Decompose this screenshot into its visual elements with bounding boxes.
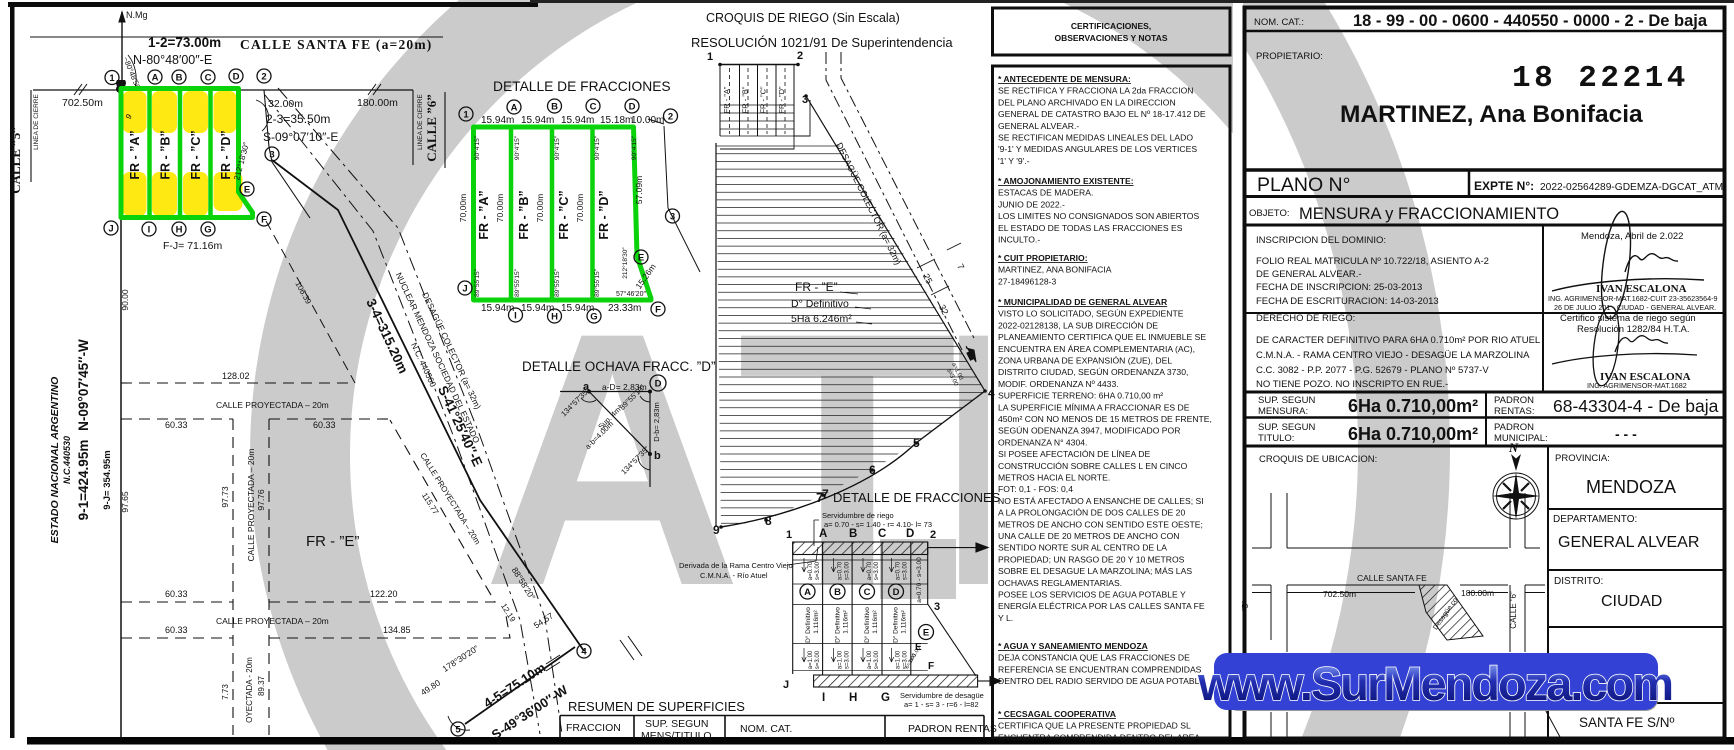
svg-text:DISTRITO CIUDAD, SEGÚN ORDENAN: DISTRITO CIUDAD, SEGÚN ORDENANZA 3730,	[998, 367, 1188, 377]
svg-text:SUP. SEGUN: SUP. SEGUN	[1258, 395, 1316, 406]
svg-text:A: A	[152, 72, 159, 83]
svg-text:CALLE ”5”: CALLE ”5”	[8, 126, 23, 194]
svg-text:27-18496128-3: 27-18496128-3	[998, 276, 1057, 286]
svg-text:RESOLUCIÓN 1021/91 De Superint: RESOLUCIÓN 1021/91 De Superintendencia	[691, 35, 953, 50]
svg-text:DEPARTAMENTO:: DEPARTAMENTO:	[1553, 514, 1637, 525]
svg-text:G: G	[590, 311, 597, 322]
svg-text:D: D	[655, 378, 662, 389]
svg-text:ESTACAS DE MADERA.: ESTACAS DE MADERA.	[998, 188, 1093, 198]
svg-text:GENERAL ALVEAR.-: GENERAL ALVEAR.-	[998, 121, 1079, 131]
svg-text:F: F	[261, 214, 267, 225]
svg-text:FR - ”E”: FR - ”E”	[795, 280, 838, 294]
svg-text:s=3.00: s=3.00	[845, 650, 851, 669]
svg-text:FR - ”B”: FR - ”B”	[741, 86, 750, 113]
svg-text:NOM. CAT.: NOM. CAT.	[740, 723, 792, 735]
svg-text:GENERAL DE CATASTRO BAJO EL Nº: GENERAL DE CATASTRO BAJO EL Nº 18-17.412…	[998, 109, 1206, 119]
svg-text:1.116m²: 1.116m²	[872, 609, 879, 633]
svg-text:G: G	[204, 224, 211, 235]
svg-text:I: I	[822, 692, 825, 704]
svg-text:b: b	[654, 450, 661, 462]
svg-text:s=3.00: s=3.00	[874, 561, 880, 580]
svg-text:32.00m: 32.00m	[268, 98, 303, 110]
svg-text:450m² CON NO MENOS DE 15 METRO: 450m² CON NO MENOS DE 15 METROS DE FRENT…	[998, 414, 1212, 424]
svg-text:C: C	[878, 528, 886, 540]
svg-text:LINEA DE CIERRE: LINEA DE CIERRE	[33, 94, 40, 150]
svg-text:DENTRO DEL RADIO SERVIDO DE AG: DENTRO DEL RADIO SERVIDO DE AGUA POTABLE	[998, 676, 1205, 686]
svg-text:'9-1' Y MEDIDAS ANGULARES DE L: '9-1' Y MEDIDAS ANGULARES DE LOS VERTICE…	[998, 144, 1197, 154]
svg-text:PLANEAMIENTO CERTIFICA QUE EL: PLANEAMIENTO CERTIFICA QUE EL INMUEBLE S…	[998, 332, 1206, 342]
svg-text:INCULTO.-: INCULTO.-	[998, 235, 1040, 245]
svg-text:REFERENCIA SE ENCUENTRAN COMPR: REFERENCIA SE ENCUENTRAN COMPRENDIDAS	[998, 664, 1202, 674]
svg-text:I: I	[148, 224, 151, 235]
svg-text:”5”: ”5”	[1241, 601, 1250, 611]
svg-text:FOLIO REAL MATRICULA Nº 10.722: FOLIO REAL MATRICULA Nº 10.722/18, ASIEN…	[1256, 256, 1489, 267]
svg-text:s=3.00: s=3.00	[815, 561, 821, 580]
svg-text:F: F	[928, 661, 934, 672]
svg-text:CIUDAD: CIUDAD	[1601, 593, 1662, 610]
svg-text:VISTO LO SOLICITADO, SEGÚN EXP: VISTO LO SOLICITADO, SEGÚN EXPEDIENTE	[998, 309, 1184, 319]
svg-text:E: E	[244, 184, 250, 195]
svg-text:89.37: 89.37	[257, 675, 266, 696]
svg-text:DEL PLANO ARCHIVADO EN LA DIRE: DEL PLANO ARCHIVADO EN LA DIRECCION	[998, 97, 1176, 107]
svg-text:CROQUIS DE RIEGO (Sin Escala): CROQUIS DE RIEGO (Sin Escala)	[706, 11, 900, 25]
svg-text:70.00m: 70.00m	[575, 194, 585, 222]
svg-text:MODIF. ORDENANZA Nº 4433.: MODIF. ORDENANZA Nº 4433.	[998, 379, 1119, 389]
svg-text:OYECTADA - 20m: OYECTADA - 20m	[245, 657, 254, 723]
svg-text:Derivada de la Rama Centro Vie: Derivada de la Rama Centro Viejo	[679, 561, 793, 570]
svg-text:9-1=424.95m: 9-1=424.95m	[76, 440, 91, 521]
svg-text:* CECSAGAL COOPERATIVA: * CECSAGAL COOPERATIVA	[998, 709, 1116, 719]
svg-text:D: D	[629, 101, 636, 112]
svg-text:H: H	[551, 311, 558, 322]
svg-text:SENTIDO NORTE SUR AL CENTRO DE: SENTIDO NORTE SUR AL CENTRO DE LA	[998, 543, 1167, 553]
svg-text:15.18m: 15.18m	[600, 115, 633, 126]
svg-text:2: 2	[930, 529, 936, 541]
svg-text:PADRON: PADRON	[1494, 395, 1534, 406]
svg-text:D° Definitivo: D° Definitivo	[791, 298, 849, 310]
svg-text:N-09°07′45″-W: N-09°07′45″-W	[76, 339, 91, 431]
svg-text:ENCUENTRA EN ÁREA COMPLEMENTAR: ENCUENTRA EN ÁREA COMPLEMENTARIA (AC),	[998, 344, 1195, 354]
svg-text:128.02: 128.02	[222, 371, 250, 381]
svg-text:57.09m: 57.09m	[634, 176, 644, 204]
svg-text:C.M.N.A. - Río Atuel: C.M.N.A. - Río Atuel	[700, 571, 768, 580]
svg-text:180.00m: 180.00m	[1461, 588, 1494, 598]
svg-text:a=0.70: a=0.70	[808, 561, 814, 580]
svg-text:DETALLE OCHAVA FRACC. ”D”: DETALLE OCHAVA FRACC. ”D”	[522, 359, 716, 374]
svg-text:'1' Y '9'.-: '1' Y '9'.-	[998, 156, 1030, 166]
svg-text:s=3.00: s=3.00	[845, 561, 851, 580]
svg-text:A LA PROLONGACIÓN DE DOS CALLE: A LA PROLONGACIÓN DE DOS CALLES DE 20	[998, 508, 1185, 518]
svg-text:90°4′15″: 90°4′15″	[473, 135, 481, 160]
svg-text:15.94m: 15.94m	[561, 115, 594, 126]
svg-text:METROS HACIA EL NORTE.: METROS HACIA EL NORTE.	[998, 473, 1110, 483]
svg-text:6Ha 0.710,00m²: 6Ha 0.710,00m²	[1348, 424, 1478, 444]
svg-text:90.00: 90.00	[120, 289, 130, 311]
svg-text:DETALLE DE FRACCIONES: DETALLE DE FRACCIONES	[833, 490, 1001, 505]
svg-text:s=3.00: s=3.00	[815, 650, 821, 669]
svg-text:SOBRE EL DESAGUE LA MARZOLINA;: SOBRE EL DESAGUE LA MARZOLINA; MÁS LAS	[998, 566, 1192, 576]
svg-text:* AGUA Y SANEAMIENTO MENDOZA: * AGUA Y SANEAMIENTO MENDOZA	[998, 641, 1148, 651]
svg-text:C: C	[590, 101, 597, 112]
svg-text:Mendoza, Abril de 2.022: Mendoza, Abril de 2.022	[1581, 231, 1683, 242]
svg-text:DE GENERAL ALVEAR.-: DE GENERAL ALVEAR.-	[1256, 269, 1362, 280]
svg-text:a=0.70 - s=3.00: a=0.70 - s=3.00	[916, 557, 923, 603]
svg-text:18 - 99 - 00 - 0600 - 440550 -: 18 - 99 - 00 - 0600 - 440550 - 0000 - 2 …	[1353, 12, 1708, 30]
svg-text:CALLE PROYECTADA – 20m: CALLE PROYECTADA – 20m	[246, 449, 256, 562]
svg-text:ENERGÍA ELÉCTRICA POR LAS CALL: ENERGÍA ELÉCTRICA POR LAS CALLES SANTA F…	[998, 601, 1205, 611]
svg-text:DETALLE DE FRACCIONES: DETALLE DE FRACCIONES	[493, 79, 671, 94]
svg-text:FR - ”E”: FR - ”E”	[306, 533, 359, 550]
svg-text:PLANO N°: PLANO N°	[1257, 174, 1350, 196]
svg-text:a=1.00: a=1.00	[896, 650, 902, 669]
svg-text:CALLE ”6”: CALLE ”6”	[424, 94, 439, 162]
svg-text:ESTADO NACIONAL ARGENTINO: ESTADO NACIONAL ARGENTINO	[49, 377, 61, 544]
svg-text:SANTA FE S/Nº: SANTA FE S/Nº	[1579, 715, 1675, 730]
svg-text:60.33: 60.33	[165, 625, 188, 635]
svg-text:89°55′15″: 89°55′15″	[553, 268, 561, 297]
svg-text:LOS LIMITES NO CONSIGNADOS SON: LOS LIMITES NO CONSIGNADOS SON ABIERTOS	[998, 211, 1199, 221]
svg-text:15.94m: 15.94m	[521, 303, 554, 314]
svg-text:MARTINEZ, ANA BONIFACIA: MARTINEZ, ANA BONIFACIA	[998, 265, 1112, 275]
svg-text:D: D	[233, 71, 240, 82]
svg-text:* AMOJONAMIENTO EXISTENTE:: * AMOJONAMIENTO EXISTENTE:	[998, 176, 1134, 186]
svg-text:57°46′20″: 57°46′20″	[616, 290, 646, 298]
svg-text:10.00m: 10.00m	[631, 115, 664, 126]
svg-text:212°18′30″: 212°18′30″	[232, 141, 251, 181]
svg-text:PADRON: PADRON	[1494, 422, 1534, 433]
svg-text:D: D	[906, 528, 914, 540]
svg-text:2: 2	[797, 50, 803, 62]
svg-text:4: 4	[581, 646, 587, 657]
svg-text:5: 5	[455, 724, 461, 735]
svg-text:FOT: 0,1 - FOS: 0,4: FOT: 0,1 - FOS: 0,4	[998, 484, 1073, 494]
svg-text:FR - ”D”: FR - ”D”	[597, 190, 611, 239]
svg-text:90°4′15″: 90°4′15″	[553, 135, 561, 160]
svg-text:9: 9	[713, 523, 720, 537]
svg-text:H: H	[849, 692, 857, 704]
svg-text:* ANTECEDENTE DE MENSURA:: * ANTECEDENTE DE MENSURA:	[998, 74, 1131, 84]
svg-text:METROS DE ANCHO CON SENTIDO ES: METROS DE ANCHO CON SENTIDO ESTE OESTE;	[998, 519, 1203, 529]
svg-text:7: 7	[816, 490, 823, 505]
svg-text:SE RECTIFICA Y FRACCIONA LA 2d: SE RECTIFICA Y FRACCIONA LA 2da FRACCION	[998, 86, 1193, 96]
svg-text:a=0.70: a=0.70	[896, 561, 902, 580]
svg-text:MENDOZA: MENDOZA	[1586, 477, 1676, 497]
svg-text:Y L.: Y L.	[998, 613, 1013, 623]
svg-text:H: H	[176, 224, 183, 235]
svg-text:15.94m: 15.94m	[521, 115, 554, 126]
svg-text:NO ESTÁ AFECTADO A ENSANCHE DE: NO ESTÁ AFECTADO A ENSANCHE DE CALLES; S…	[998, 496, 1204, 506]
svg-text:1: 1	[463, 109, 469, 120]
svg-text:DISTRITO:: DISTRITO:	[1554, 576, 1603, 587]
svg-text:N: N	[1508, 441, 1519, 455]
svg-text:2-3=35.50m: 2-3=35.50m	[266, 112, 330, 126]
svg-text:2022-02128138, LA SUB DIRECCIÓ: 2022-02128138, LA SUB DIRECCIÓN DE	[998, 320, 1158, 330]
svg-text:JUNIO DE 2022.-: JUNIO DE 2022.-	[998, 199, 1065, 209]
svg-text:D° Definitivo: D° Definitivo	[834, 607, 842, 643]
svg-text:ORDENANZA N° 4304.: ORDENANZA N° 4304.	[998, 437, 1087, 447]
svg-text:97.73: 97.73	[220, 486, 230, 508]
svg-text:F: F	[655, 304, 661, 315]
svg-text:ING. AGRIMENSOR-MAT.1682: ING. AGRIMENSOR-MAT.1682	[1587, 381, 1687, 390]
svg-text:C: C	[864, 587, 871, 598]
svg-text:FR - ”B”: FR - ”B”	[517, 190, 531, 239]
svg-text:1-2=73.00m: 1-2=73.00m	[148, 35, 221, 50]
svg-text:A: A	[511, 102, 518, 113]
svg-text:C: C	[205, 72, 212, 83]
svg-text:EXPTE N°:: EXPTE N°:	[1474, 179, 1534, 193]
svg-text:49.80: 49.80	[419, 677, 443, 697]
svg-text:FECHA DE INSCRIPCION: 25-03-20: FECHA DE INSCRIPCION: 25-03-2013	[1256, 282, 1422, 293]
svg-text:SUPERFICIE TERRENO: 6HA 0.710,: SUPERFICIE TERRENO: 6HA 0.710,00 m²	[998, 391, 1163, 401]
svg-text:INSCRIPCION DEL DOMINIO:: INSCRIPCION DEL DOMINIO:	[1256, 235, 1386, 246]
svg-text:B: B	[551, 101, 558, 112]
svg-text:TITULO:: TITULO:	[1258, 433, 1294, 444]
svg-text:www.SurMendoza.com: www.SurMendoza.com	[1197, 657, 1672, 710]
svg-text:N.Mg: N.Mg	[126, 10, 148, 20]
svg-text:N.C.440530: N.C.440530	[62, 436, 72, 484]
svg-text:212°18′30″: 212°18′30″	[621, 247, 629, 279]
svg-text:D° Definitivo: D° Definitivo	[804, 607, 812, 643]
svg-text:60.33: 60.33	[165, 589, 188, 599]
svg-text:a= 1 - s= 3 - r=6 - l=82: a= 1 - s= 3 - r=6 - l=82	[904, 700, 979, 709]
svg-text:26 DE JULIO 201 - CIUDAD - GEN: 26 DE JULIO 201 - CIUDAD - GENERAL ALVEA…	[1554, 303, 1716, 312]
svg-text:23.33m: 23.33m	[608, 303, 641, 314]
svg-text:B: B	[834, 587, 841, 598]
svg-text:UNA CALLE DE 20 METROS DE ANCH: UNA CALLE DE 20 METROS DE ANCHO CON	[998, 531, 1179, 541]
svg-text:SUP. SEGUN: SUP. SEGUN	[645, 718, 708, 730]
svg-text:Resolución 1282/84 H.T.A.: Resolución 1282/84 H.T.A.	[1577, 324, 1689, 335]
svg-text:CALLE PROYECTADA – 20m: CALLE PROYECTADA – 20m	[216, 616, 329, 626]
svg-text:a=1.00: a=1.00	[808, 650, 814, 669]
svg-text:2: 2	[261, 71, 266, 82]
svg-text:SUP. SEGUN: SUP. SEGUN	[1258, 422, 1316, 433]
svg-text:B: B	[849, 528, 857, 540]
svg-text:9-J= 354.95m: 9-J= 354.95m	[102, 450, 113, 509]
svg-text:90°4′15″: 90°4′15″	[593, 135, 601, 160]
svg-text:60.33: 60.33	[313, 420, 336, 430]
svg-text:FR - ”A”: FR - ”A”	[128, 130, 142, 179]
svg-text:70.00m: 70.00m	[535, 194, 545, 222]
svg-text:OBJETO:: OBJETO:	[1249, 208, 1289, 219]
svg-text:FRACCION: FRACCION	[566, 722, 621, 734]
svg-text:MENSURA y FRACCIONAMIENTO: MENSURA y FRACCIONAMIENTO	[1299, 205, 1559, 223]
svg-text:CALLE SANTA FE (a=20m): CALLE SANTA FE (a=20m)	[240, 37, 432, 52]
svg-text:s=3.00: s=3.00	[903, 561, 909, 580]
svg-text:a=0.70: a=0.70	[838, 561, 844, 580]
svg-text:D° Definitivo: D° Definitivo	[892, 607, 900, 643]
svg-text:POSEE LOS SERVICIOS DE AGUA PO: POSEE LOS SERVICIOS DE AGUA POTABLE Y	[998, 590, 1186, 600]
svg-text:68-43304-4 - De baja: 68-43304-4 - De baja	[1553, 396, 1719, 416]
svg-text:3: 3	[934, 601, 940, 613]
svg-text:1: 1	[109, 73, 115, 84]
svg-text:PROPIEDAD; UN RASGO DE 20 Y 10: PROPIEDAD; UN RASGO DE 20 Y 10 METROS	[998, 554, 1185, 564]
svg-text:A: A	[819, 528, 827, 540]
svg-text:89°55′15″: 89°55′15″	[593, 268, 601, 297]
svg-text:Certifico sistema de riego seg: Certifico sistema de riego según	[1560, 313, 1696, 324]
svg-text:CALLE PROYECTADA – 20m: CALLE PROYECTADA – 20m	[216, 400, 329, 410]
svg-text:* CUIT PROPIETARIO:: * CUIT PROPIETARIO:	[998, 253, 1088, 263]
svg-text:NO TIENE POZO. NO INSCRIPTO EN: NO TIENE POZO. NO INSCRIPTO EN RUE.-	[1256, 379, 1448, 390]
svg-text:J: J	[108, 223, 113, 234]
svg-text:GENERAL ALVEAR: GENERAL ALVEAR	[1558, 534, 1699, 551]
svg-text:SEGÚN ODENANZA 3947, MODIFICAD: SEGÚN ODENANZA 3947, MODIFICADO POR	[998, 426, 1180, 436]
svg-text:a=1.00: a=1.00	[867, 650, 873, 669]
svg-text:122.20: 122.20	[370, 589, 398, 599]
svg-text:97.76: 97.76	[256, 489, 266, 511]
svg-text:G: G	[881, 692, 890, 704]
svg-text:SI POSEE AFECTACIÓN DE LÍNEA D: SI POSEE AFECTACIÓN DE LÍNEA DE	[998, 449, 1150, 459]
svg-text:CERTIFICA QUE LA PRESENTE PROP: CERTIFICA QUE LA PRESENTE PROPIEDAD SL	[998, 721, 1191, 731]
svg-text:ING. AGRIMENSOR-MAT.1682-CUIT: ING. AGRIMENSOR-MAT.1682-CUIT 23-3562356…	[1548, 294, 1718, 303]
svg-text:J: J	[462, 283, 467, 294]
svg-text:70.00m: 70.00m	[495, 194, 505, 222]
svg-text:NUCLEAR MENDOZA SOCIEDAD DEL E: NUCLEAR MENDOZA SOCIEDAD DEL ESTADO	[394, 271, 482, 445]
svg-text:FR - ”A”: FR - ”A”	[477, 190, 491, 239]
svg-text:Servidumbre de desagüe: Servidumbre de desagüe	[900, 691, 984, 700]
svg-text:ZONA URBANA DE EXPANSIÓN (ZUE): ZONA URBANA DE EXPANSIÓN (ZUE), DEL	[998, 356, 1172, 366]
svg-text:CALLE SANTA FE: CALLE SANTA FE	[1357, 573, 1427, 583]
svg-text:N-80°48′00″-E: N-80°48′00″-E	[133, 53, 212, 67]
svg-text:180.00m: 180.00m	[357, 97, 398, 109]
svg-text:1: 1	[707, 51, 713, 63]
svg-text:FR - ”D”: FR - ”D”	[219, 130, 233, 179]
svg-text:E: E	[923, 627, 929, 638]
svg-text:1.116m²: 1.116m²	[843, 609, 850, 633]
svg-text:18 22214: 18 22214	[1512, 61, 1689, 96]
svg-text:PROPIETARIO:: PROPIETARIO:	[1256, 51, 1323, 62]
svg-text:EL ESTADO DE TODAS LAS FRACCIO: EL ESTADO DE TODAS LAS FRACCIONES ES	[998, 223, 1183, 233]
svg-text:LA SUPERFICIE MÍNIMA A FRACCIO: LA SUPERFICIE MÍNIMA A FRACCIONAR ES DE	[998, 402, 1190, 412]
svg-text:FR - ”A”: FR - ”A”	[722, 86, 731, 113]
svg-text:115.77: 115.77	[420, 491, 441, 516]
svg-text:PADRON RENTAS: PADRON RENTAS	[908, 723, 997, 735]
svg-text:702.50m: 702.50m	[1323, 589, 1356, 599]
svg-text:178°30′20″: 178°30′20″	[440, 643, 480, 674]
svg-text:s=3.00: s=3.00	[874, 650, 880, 669]
svg-text:NOM. CAT.:: NOM. CAT.:	[1254, 17, 1304, 28]
svg-text:5Ha 6.246m²: 5Ha 6.246m²	[791, 313, 852, 325]
svg-text:2022-02564289-GDEMZA-DGCAT_ATM: 2022-02564289-GDEMZA-DGCAT_ATM	[1540, 182, 1723, 193]
svg-text:PROVINCIA:: PROVINCIA:	[1555, 453, 1610, 464]
svg-text:90°4′15″: 90°4′15″	[630, 135, 638, 160]
svg-text:89°55′15″: 89°55′15″	[473, 268, 481, 297]
svg-text:FR - ”D”: FR - ”D”	[777, 86, 786, 114]
svg-text:70,00m: 70,00m	[458, 194, 468, 222]
svg-text:1.116m²: 1.116m²	[813, 609, 820, 633]
svg-text:MARTINEZ, Ana Bonifacia: MARTINEZ, Ana Bonifacia	[1340, 101, 1643, 128]
svg-text:DEJA CONSTANCIA QUE LAS FRACCI: DEJA CONSTANCIA QUE LAS FRACCIONES DE	[998, 653, 1190, 663]
svg-text:CONSTRUCCIÓN SOBRE CALLES L EN: CONSTRUCCIÓN SOBRE CALLES L EN CINCO	[998, 461, 1188, 471]
svg-text:E: E	[638, 252, 644, 263]
svg-text:FR - ”C”: FR - ”C”	[189, 130, 203, 179]
svg-text:CERTIFICACIONES,: CERTIFICACIONES,	[1071, 21, 1151, 31]
svg-text:FR - ”C”: FR - ”C”	[557, 190, 571, 239]
svg-text:90°4′15″: 90°4′15″	[513, 135, 521, 160]
svg-text:OBSERVACIONES Y NOTAS: OBSERVACIONES Y NOTAS	[1054, 33, 1167, 43]
svg-text:a=1.00: a=1.00	[838, 650, 844, 669]
svg-text:15.94m: 15.94m	[481, 115, 514, 126]
svg-text:RENTAS:: RENTAS:	[1494, 406, 1534, 417]
svg-text:ENCUENTRA COMPRENDIDA DENTRO D: ENCUENTRA COMPRENDIDA DENTRO DEL AREA	[998, 732, 1200, 742]
svg-text:60.33: 60.33	[165, 420, 188, 430]
svg-text:B: B	[176, 72, 183, 83]
svg-text:MUNICIPAL:: MUNICIPAL:	[1494, 433, 1548, 444]
svg-text:a=0.70: a=0.70	[867, 561, 873, 580]
svg-text:Servidumbre de riego: Servidumbre de riego	[822, 511, 894, 520]
svg-text:DERECHO DE RIEGO:: DERECHO DE RIEGO:	[1256, 313, 1355, 324]
svg-text:89°55′15″: 89°55′15″	[513, 268, 521, 297]
svg-text:MENS/TITULO: MENS/TITULO	[641, 730, 712, 742]
svg-text:FR - ”B”: FR - ”B”	[159, 130, 173, 179]
svg-text:FECHA DE ESCRITURACION: 14-03-: FECHA DE ESCRITURACION: 14-03-2013	[1256, 296, 1439, 307]
svg-text:2: 2	[668, 111, 673, 122]
svg-text:SE RECTIFICAN MEDIDAS LINEALES: SE RECTIFICAN MEDIDAS LINEALES DEL LADO	[998, 133, 1193, 143]
svg-text:6Ha 0.710,00m²: 6Ha 0.710,00m²	[1348, 396, 1478, 416]
svg-text:OCHAVAS REGLAMENTARIAS.: OCHAVAS REGLAMENTARIAS.	[998, 578, 1122, 588]
svg-text:RESUMEN DE SUPERFICIES: RESUMEN DE SUPERFICIES	[568, 699, 745, 714]
svg-text:97.65: 97.65	[120, 491, 130, 513]
svg-text:D-b= 2,83m: D-b= 2,83m	[652, 402, 661, 441]
svg-text:F-J= 71.16m: F-J= 71.16m	[163, 240, 222, 252]
svg-text:134.85: 134.85	[383, 625, 411, 635]
svg-text:A: A	[804, 587, 811, 598]
svg-text:702.50m: 702.50m	[62, 97, 103, 109]
svg-text:D: D	[893, 587, 900, 598]
svg-text:CROQUIS DE UBICACION:: CROQUIS DE UBICACION:	[1259, 454, 1377, 465]
svg-text:CALLE ”6”: CALLE ”6”	[1509, 591, 1518, 629]
svg-text:1: 1	[786, 529, 792, 541]
svg-text:S-09°07′10″-E: S-09°07′10″-E	[263, 130, 338, 144]
svg-text:LINEA DE CIERRE: LINEA DE CIERRE	[417, 94, 424, 150]
svg-text:DESAGÜE COLECTOR (a= 32m): DESAGÜE COLECTOR (a= 32m)	[834, 141, 903, 266]
svg-text:C.C. 3082 - P.P. 2077 - P.G. 5: C.C. 3082 - P.P. 2077 - P.G. 52679 - PLA…	[1256, 365, 1489, 376]
svg-text:DE CARACTER DEFINITIVO PARA 6H: DE CARACTER DEFINITIVO PARA 6HA 0.710m² …	[1256, 335, 1540, 346]
svg-text:C.M.N.A. - RAMA CENTRO VIEJO -: C.M.N.A. - RAMA CENTRO VIEJO - DESAGÜE L…	[1256, 350, 1530, 361]
svg-text:D° Definitivo: D° Definitivo	[863, 607, 871, 643]
svg-text:MENSURA:: MENSURA:	[1258, 406, 1308, 417]
svg-text:- - -: - - -	[1615, 426, 1637, 442]
svg-text:7.73: 7.73	[221, 684, 230, 700]
svg-text:FR - ”C”: FR - ”C”	[759, 86, 768, 114]
svg-text:I: I	[514, 310, 517, 321]
svg-text:* MUNICIPALIDAD DE GENERAL ALV: * MUNICIPALIDAD DE GENERAL ALVEAR	[998, 297, 1168, 307]
svg-text:1.116m²: 1.116m²	[901, 609, 908, 633]
svg-text:J: J	[783, 679, 789, 691]
